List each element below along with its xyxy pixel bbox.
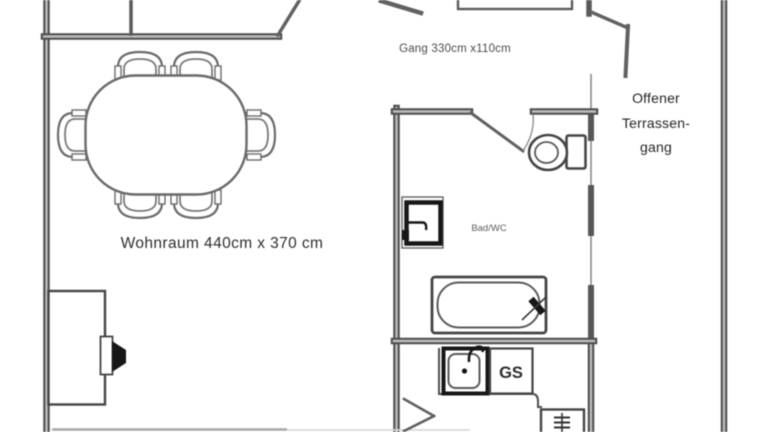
washbasin-fitting <box>402 230 409 240</box>
door-swing-icon <box>381 1 421 13</box>
door-swing-icon <box>471 113 523 151</box>
tv-icon <box>112 341 126 372</box>
sideboard <box>49 291 106 405</box>
dining-table-icon <box>86 76 247 195</box>
toilet-icon <box>529 135 586 170</box>
open-door-leaf <box>626 26 629 76</box>
door-swing-icon <box>278 1 299 35</box>
bathroom-label: Bad/WC <box>471 223 507 234</box>
counter-step <box>533 394 542 407</box>
dining-set <box>58 52 275 218</box>
living-room-label: Wohnraum 440cm x 370 cm <box>121 235 324 252</box>
kitchen-sink-icon <box>444 347 488 394</box>
sink-drain-dot <box>462 368 467 373</box>
dishwasher-label: GS <box>499 364 523 382</box>
tv-stand <box>101 337 113 375</box>
floor-plan: Wohnraum 440cm x 370 cm Gang 330cm x110c… <box>0 0 768 432</box>
door-swing-icon <box>591 12 628 28</box>
radiator-icon <box>541 410 584 432</box>
terrace-label-line2: Terrassen- <box>622 115 690 131</box>
toilet-tank <box>567 136 586 169</box>
door-swing-icon <box>404 416 434 431</box>
door-swing-icon <box>404 399 434 416</box>
top-closet <box>458 0 572 9</box>
hallway-label: Gang 330cm x110cm <box>399 43 511 55</box>
terrace-label-line3: gang <box>640 139 672 155</box>
bathtub-icon <box>432 277 546 333</box>
chair-icon <box>246 110 275 160</box>
terrace-label-line1: Offener <box>632 90 680 106</box>
chair-icon <box>58 110 87 160</box>
washbasin-icon <box>402 197 443 248</box>
